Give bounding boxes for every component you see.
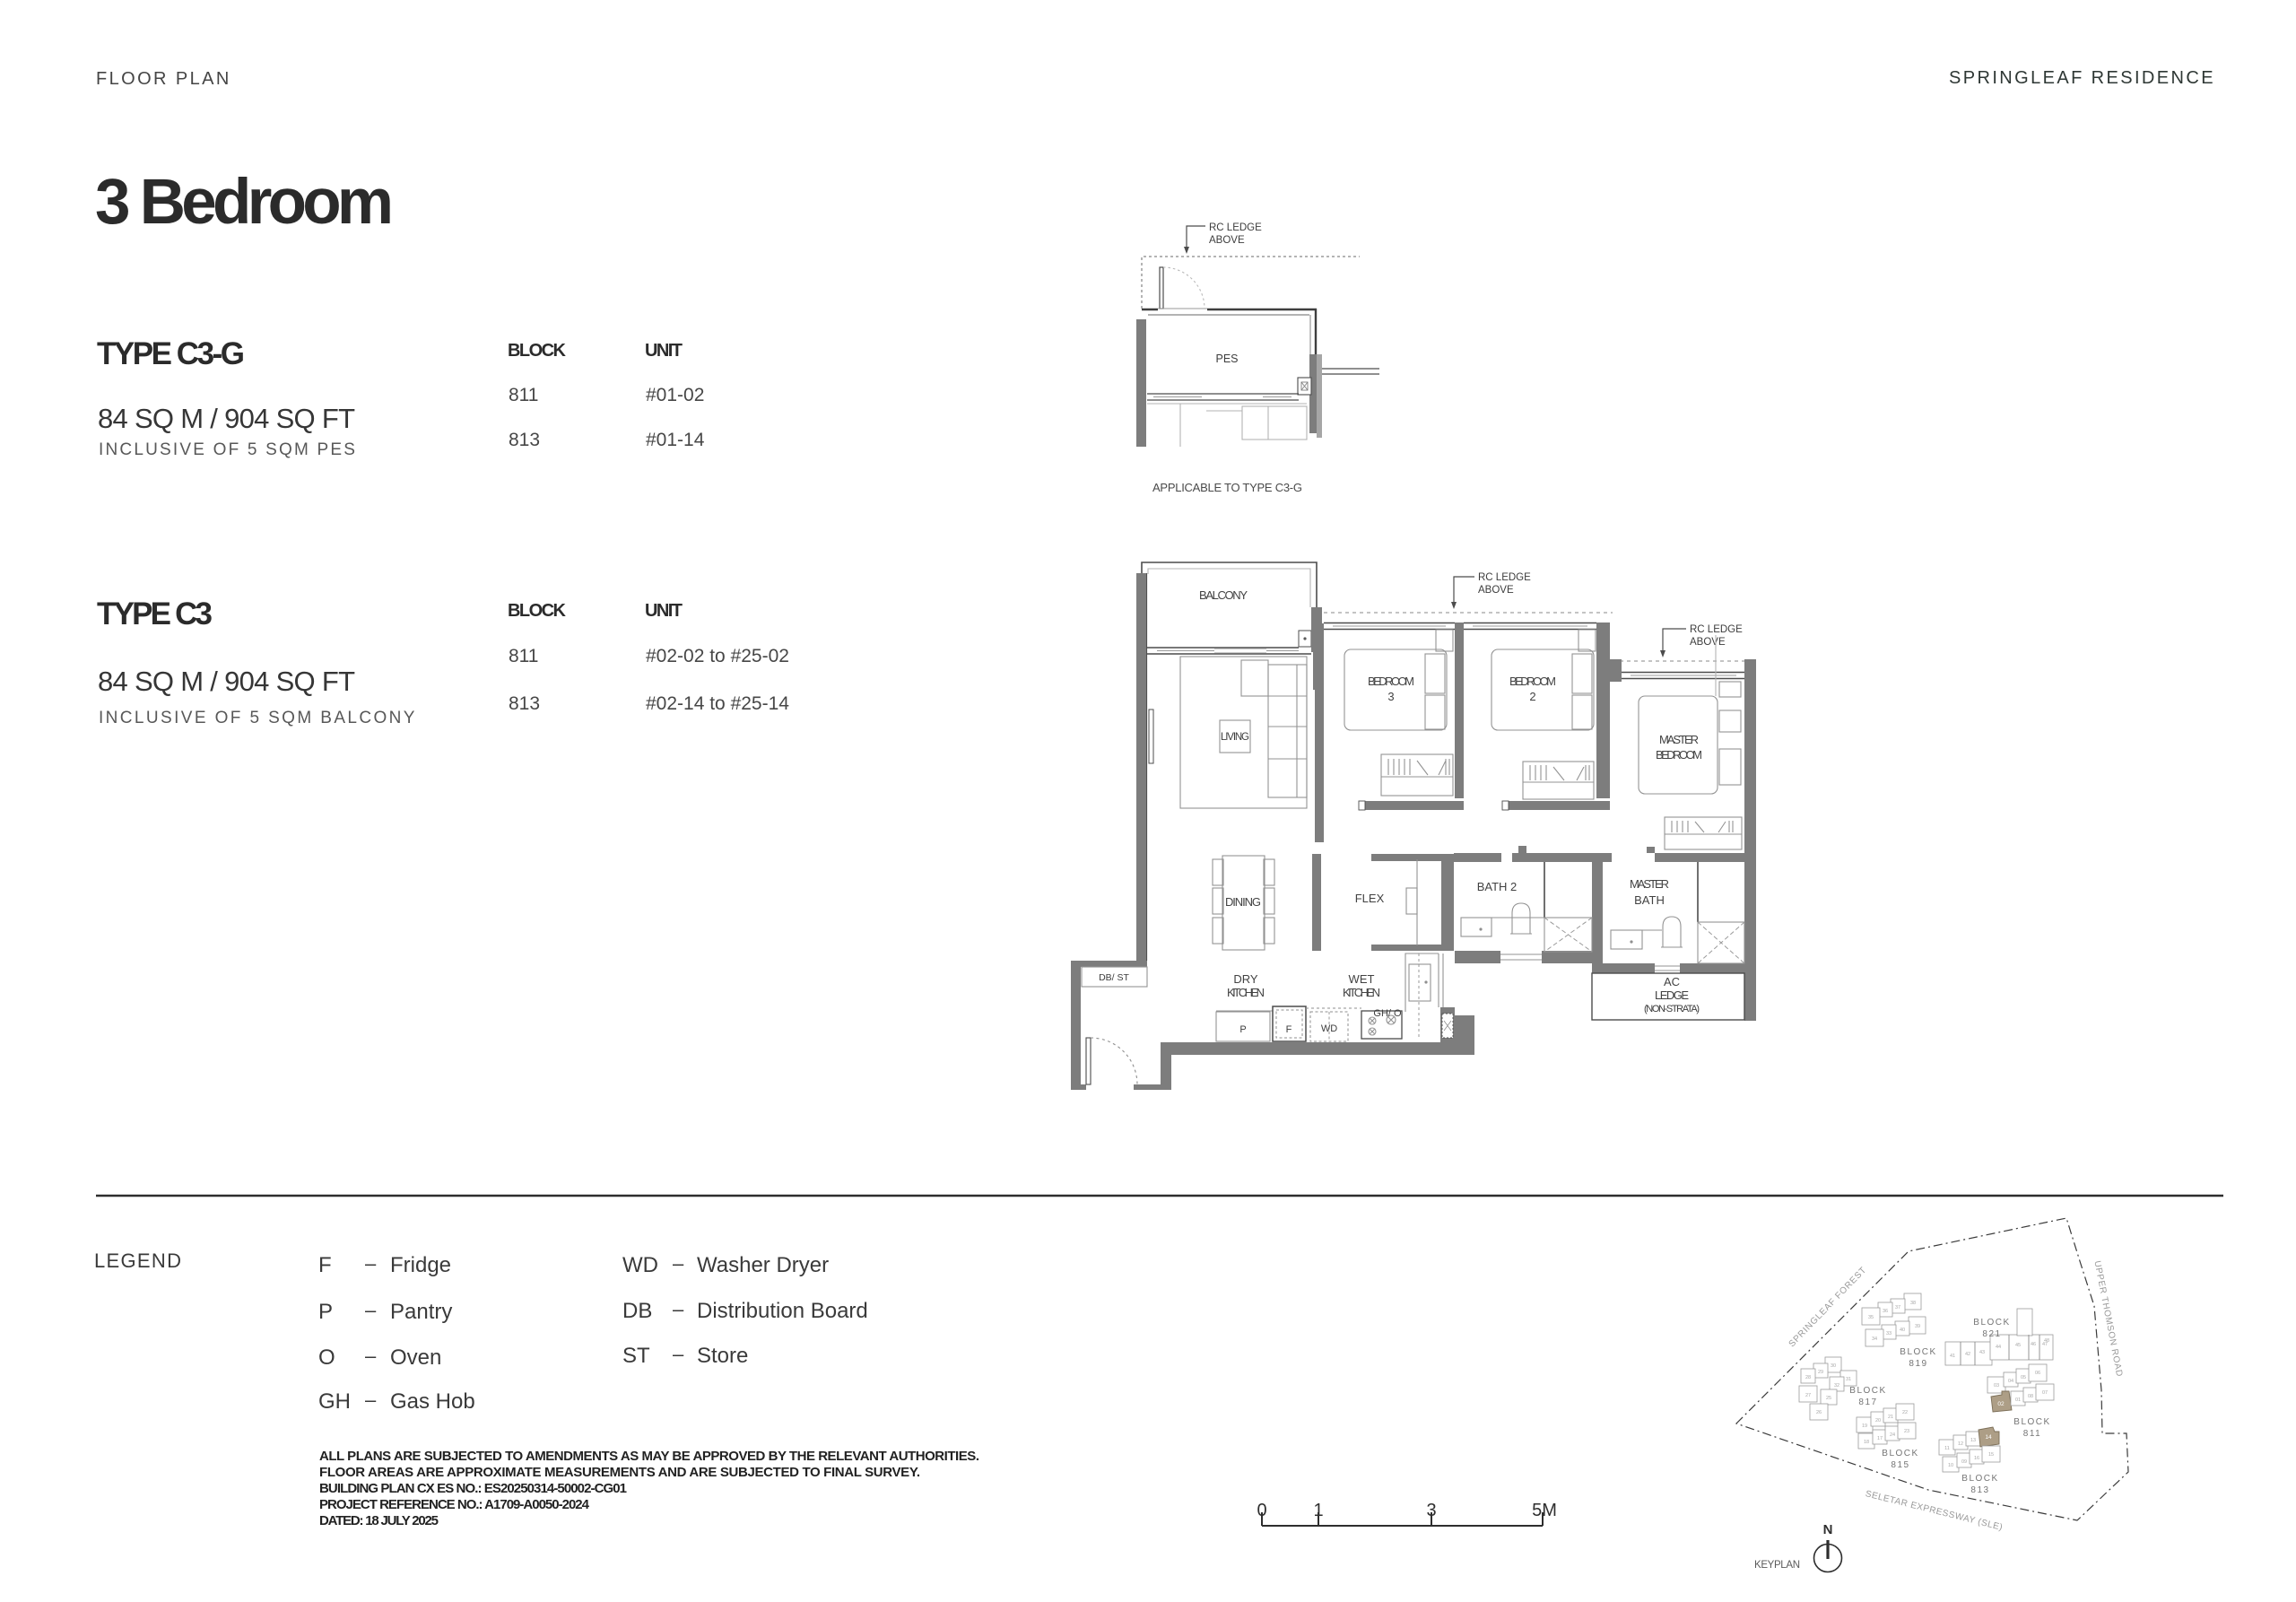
svg-text:39: 39 bbox=[1915, 1324, 1920, 1329]
svg-text:Pantry: Pantry bbox=[390, 1300, 452, 1324]
svg-text:INCLUSIVE OF 5 SQM BALCONY: INCLUSIVE OF 5 SQM BALCONY bbox=[99, 709, 417, 727]
svg-text:BLOCK: BLOCK bbox=[1849, 1386, 1886, 1396]
svg-text:Distribution Board: Distribution Board bbox=[697, 1299, 868, 1323]
svg-text:5M: 5M bbox=[1532, 1501, 1557, 1520]
svg-text:24: 24 bbox=[1890, 1432, 1895, 1438]
svg-text:38: 38 bbox=[1910, 1301, 1916, 1306]
svg-text:29: 29 bbox=[1818, 1370, 1823, 1375]
svg-text:813: 813 bbox=[509, 693, 540, 714]
svg-text:811: 811 bbox=[2023, 1429, 2041, 1439]
svg-text:#01-14: #01-14 bbox=[646, 430, 705, 450]
svg-text:KITCHEN: KITCHEN bbox=[1227, 986, 1265, 999]
svg-text:MASTER: MASTER bbox=[1630, 877, 1669, 891]
svg-text:O: O bbox=[318, 1345, 335, 1370]
svg-text:Washer Dryer: Washer Dryer bbox=[697, 1253, 829, 1277]
svg-text:32: 32 bbox=[1834, 1383, 1839, 1389]
svg-text:WET: WET bbox=[1349, 972, 1375, 986]
svg-text:819: 819 bbox=[1909, 1359, 1927, 1369]
svg-text:BALCONY: BALCONY bbox=[1199, 588, 1248, 602]
svg-text:811: 811 bbox=[509, 385, 538, 405]
svg-text:RC LEDGE: RC LEDGE bbox=[1478, 572, 1531, 583]
svg-text:27: 27 bbox=[1805, 1393, 1811, 1398]
svg-text:#01-02: #01-02 bbox=[646, 385, 704, 405]
svg-text:15: 15 bbox=[1988, 1452, 1994, 1458]
svg-text:Store: Store bbox=[697, 1344, 748, 1368]
svg-text:18: 18 bbox=[1864, 1440, 1869, 1445]
svg-text:813: 813 bbox=[509, 430, 540, 450]
svg-text:30: 30 bbox=[1831, 1363, 1836, 1369]
svg-text:(NON-STRATA): (NON-STRATA) bbox=[1644, 1004, 1700, 1014]
svg-text:19: 19 bbox=[1862, 1424, 1867, 1429]
svg-text:28: 28 bbox=[1805, 1375, 1811, 1380]
svg-text:–: – bbox=[365, 1252, 377, 1275]
svg-text:BEDROOM: BEDROOM bbox=[1656, 748, 1702, 762]
svg-text:03: 03 bbox=[1994, 1383, 1999, 1389]
svg-text:PES: PES bbox=[1215, 353, 1238, 365]
svg-text:813: 813 bbox=[1970, 1485, 1989, 1495]
svg-text:P: P bbox=[1239, 1024, 1246, 1035]
svg-text:UNIT: UNIT bbox=[645, 341, 683, 361]
svg-text:ABOVE: ABOVE bbox=[1209, 235, 1245, 246]
svg-text:#02-14 to #25-14: #02-14 to #25-14 bbox=[646, 693, 789, 714]
svg-text:F: F bbox=[318, 1253, 332, 1277]
svg-text:05: 05 bbox=[2021, 1375, 2026, 1380]
svg-text:12: 12 bbox=[1958, 1441, 1963, 1447]
svg-text:22: 22 bbox=[1902, 1410, 1908, 1415]
svg-text:–: – bbox=[673, 1343, 684, 1365]
svg-text:ST: ST bbox=[622, 1344, 650, 1368]
svg-text:Oven: Oven bbox=[390, 1345, 441, 1370]
svg-text:AC: AC bbox=[1664, 975, 1680, 988]
svg-text:TYPE C3-G: TYPE C3-G bbox=[97, 336, 245, 371]
svg-text:BLOCK: BLOCK bbox=[508, 341, 567, 361]
svg-text:48: 48 bbox=[2044, 1338, 2049, 1344]
svg-text:BLOCK: BLOCK bbox=[508, 601, 567, 621]
svg-text:GH: GH bbox=[318, 1389, 351, 1414]
svg-text:17: 17 bbox=[1877, 1436, 1883, 1441]
svg-text:40: 40 bbox=[1900, 1328, 1905, 1333]
svg-text:11: 11 bbox=[1944, 1446, 1950, 1451]
svg-text:–: – bbox=[673, 1298, 684, 1320]
svg-text:815: 815 bbox=[1891, 1460, 1909, 1470]
svg-text:APPLICABLE TO TYPE C3-G: APPLICABLE TO TYPE C3-G bbox=[1152, 481, 1302, 494]
svg-text:BATH 2: BATH 2 bbox=[1477, 880, 1518, 893]
svg-text:821: 821 bbox=[1982, 1329, 2001, 1339]
svg-text:–: – bbox=[365, 1299, 377, 1321]
svg-text:06: 06 bbox=[2035, 1371, 2040, 1376]
svg-text:34: 34 bbox=[1872, 1336, 1877, 1342]
svg-text:BATH: BATH bbox=[1634, 893, 1665, 907]
svg-text:UNIT: UNIT bbox=[645, 601, 683, 621]
svg-text:–: – bbox=[365, 1345, 377, 1367]
svg-text:2: 2 bbox=[1529, 690, 1535, 703]
svg-text:08: 08 bbox=[2028, 1394, 2033, 1399]
svg-text:DINING: DINING bbox=[1225, 895, 1261, 909]
svg-text:Gas Hob: Gas Hob bbox=[390, 1389, 475, 1414]
svg-text:WD: WD bbox=[622, 1253, 658, 1277]
svg-text:3: 3 bbox=[1387, 690, 1394, 703]
svg-text:RC LEDGE: RC LEDGE bbox=[1690, 624, 1743, 635]
svg-text:13: 13 bbox=[1970, 1438, 1976, 1443]
svg-text:37: 37 bbox=[1895, 1305, 1900, 1310]
svg-text:3 Bedroom: 3 Bedroom bbox=[95, 167, 394, 238]
svg-text:46: 46 bbox=[2031, 1342, 2036, 1347]
svg-text:LEDGE: LEDGE bbox=[1655, 988, 1689, 1002]
svg-text:RC LEDGE: RC LEDGE bbox=[1209, 222, 1262, 233]
svg-text:WD: WD bbox=[1321, 1023, 1337, 1034]
svg-text:FLOOR PLAN: FLOOR PLAN bbox=[96, 69, 231, 89]
svg-text:DRY: DRY bbox=[1233, 972, 1258, 986]
svg-text:–: – bbox=[673, 1252, 684, 1275]
svg-text:01: 01 bbox=[2015, 1397, 2021, 1403]
svg-text:DATED: 18 JULY 2025: DATED: 18 JULY 2025 bbox=[319, 1513, 439, 1528]
svg-text:–: – bbox=[365, 1389, 377, 1411]
svg-text:P: P bbox=[318, 1300, 333, 1324]
svg-text:BLOCK: BLOCK bbox=[1900, 1347, 1936, 1357]
svg-text:16: 16 bbox=[1974, 1456, 1979, 1461]
svg-text:43: 43 bbox=[1979, 1350, 1985, 1355]
svg-text:35: 35 bbox=[1868, 1315, 1874, 1320]
svg-text:INCLUSIVE OF 5 SQM PES: INCLUSIVE OF 5 SQM PES bbox=[99, 440, 357, 459]
svg-text:14: 14 bbox=[1985, 1434, 1992, 1441]
svg-text:BEDROOM: BEDROOM bbox=[1509, 675, 1556, 688]
svg-text:BLOCK: BLOCK bbox=[1882, 1449, 1918, 1458]
svg-text:31: 31 bbox=[1846, 1377, 1851, 1382]
svg-text:MASTER: MASTER bbox=[1659, 733, 1699, 746]
svg-text:BEDROOM: BEDROOM bbox=[1368, 675, 1414, 688]
svg-text:KITCHEN: KITCHEN bbox=[1343, 986, 1380, 999]
svg-text:36: 36 bbox=[1883, 1309, 1888, 1314]
svg-text:02: 02 bbox=[1997, 1401, 2005, 1407]
svg-text:#02-02 to #25-02: #02-02 to #25-02 bbox=[646, 646, 789, 666]
svg-text:FLOOR AREAS ARE APPROXIMATE ME: FLOOR AREAS ARE APPROXIMATE MEASUREMENTS… bbox=[319, 1465, 920, 1480]
svg-text:23: 23 bbox=[1904, 1429, 1909, 1434]
svg-text:42: 42 bbox=[1965, 1352, 1970, 1357]
svg-text:84 SQ M / 904 SQ FT: 84 SQ M / 904 SQ FT bbox=[98, 403, 355, 434]
svg-text:ABOVE: ABOVE bbox=[1478, 585, 1514, 596]
svg-text:FLEX: FLEX bbox=[1355, 892, 1385, 905]
svg-text:ABOVE: ABOVE bbox=[1690, 637, 1726, 648]
svg-text:DB: DB bbox=[622, 1299, 652, 1323]
svg-text:44: 44 bbox=[1996, 1345, 2001, 1350]
svg-text:10: 10 bbox=[1948, 1463, 1953, 1468]
svg-text:09: 09 bbox=[1961, 1459, 1967, 1465]
svg-text:TYPE C3: TYPE C3 bbox=[97, 596, 213, 631]
svg-text:BLOCK: BLOCK bbox=[1961, 1474, 1998, 1484]
svg-text:BLOCK: BLOCK bbox=[2013, 1417, 2050, 1427]
svg-text:DB/ ST: DB/ ST bbox=[1099, 972, 1129, 983]
svg-text:41: 41 bbox=[1950, 1354, 1955, 1359]
svg-text:SPRINGLEAF RESIDENCE: SPRINGLEAF RESIDENCE bbox=[1949, 68, 2215, 88]
svg-text:N: N bbox=[1823, 1522, 1833, 1537]
svg-text:04: 04 bbox=[2008, 1379, 2013, 1384]
svg-text:PROJECT REFERENCE NO.: A1709-A: PROJECT REFERENCE NO.: A1709-A0050-2024 bbox=[319, 1497, 590, 1512]
svg-text:BUILDING PLAN CX ES NO.: ES202: BUILDING PLAN CX ES NO.: ES20250314-5000… bbox=[319, 1481, 627, 1496]
svg-text:21: 21 bbox=[1888, 1415, 1893, 1420]
svg-text:KEYPLAN: KEYPLAN bbox=[1754, 1560, 1801, 1571]
svg-text:817: 817 bbox=[1858, 1397, 1877, 1407]
svg-text:GH/ O: GH/ O bbox=[1373, 1008, 1402, 1019]
svg-text:84 SQ M / 904 SQ FT: 84 SQ M / 904 SQ FT bbox=[98, 666, 355, 697]
svg-text:LIVING: LIVING bbox=[1221, 732, 1249, 743]
svg-text:20: 20 bbox=[1875, 1418, 1881, 1424]
svg-text:F: F bbox=[1286, 1024, 1292, 1035]
svg-text:25: 25 bbox=[1826, 1396, 1831, 1401]
svg-text:07: 07 bbox=[2042, 1390, 2048, 1396]
svg-text:33: 33 bbox=[1886, 1331, 1892, 1336]
svg-text:811: 811 bbox=[509, 646, 538, 666]
svg-text:ALL PLANS ARE SUBJECTED TO AME: ALL PLANS ARE SUBJECTED TO AMENDMENTS AS… bbox=[319, 1449, 979, 1464]
svg-text:BLOCK: BLOCK bbox=[1973, 1318, 2010, 1328]
svg-text:45: 45 bbox=[2015, 1343, 2021, 1348]
svg-text:26: 26 bbox=[1816, 1410, 1822, 1415]
svg-text:LEGEND: LEGEND bbox=[94, 1249, 182, 1272]
svg-text:Fridge: Fridge bbox=[390, 1253, 451, 1277]
